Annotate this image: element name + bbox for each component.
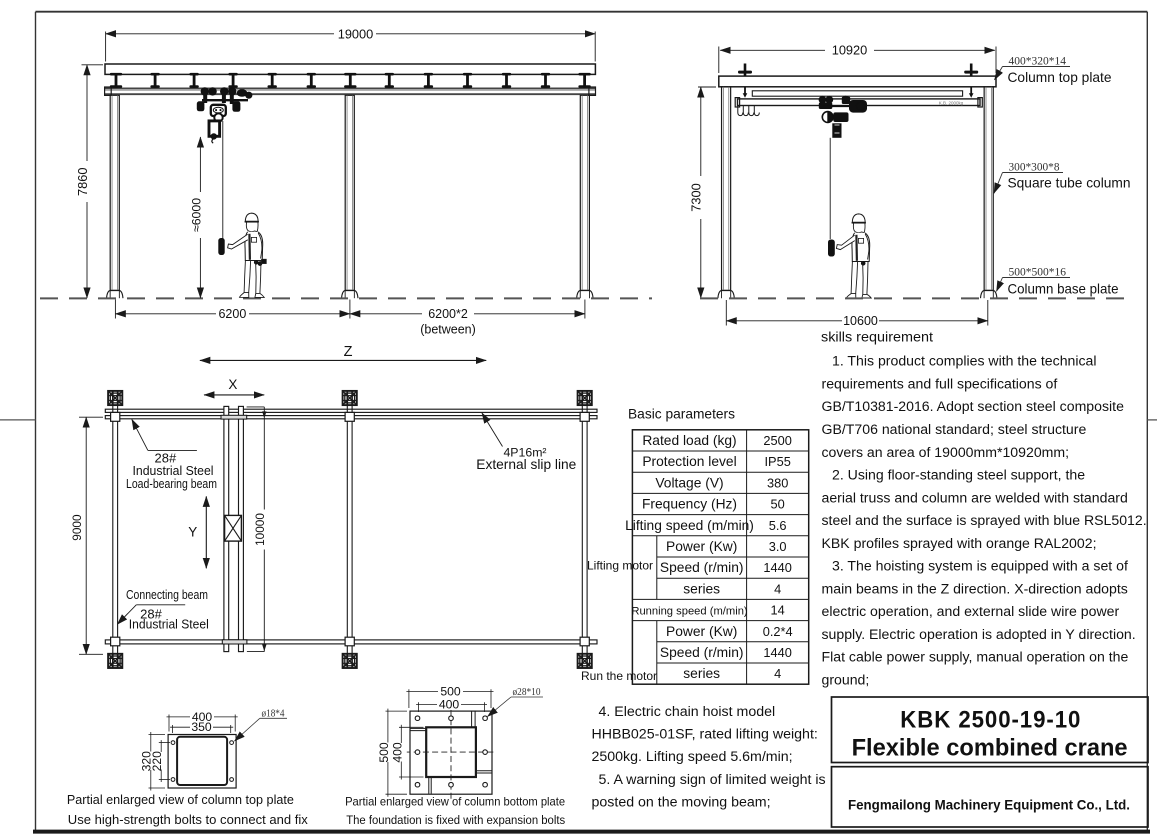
svg-text:Flat cable power supply, manua: Flat cable power supply, manual operatio… xyxy=(822,649,1129,665)
svg-text:ø18*4: ø18*4 xyxy=(262,709,286,720)
svg-text:KBK 2500-19-10: KBK 2500-19-10 xyxy=(900,706,1081,733)
svg-text:Running speed (m/min): Running speed (m/min) xyxy=(631,606,748,618)
svg-text:Speed (r/min): Speed (r/min) xyxy=(660,560,744,575)
svg-text:aerial truss and column are we: aerial truss and column are welded with … xyxy=(822,489,1128,505)
svg-text:Load-bearing beam: Load-bearing beam xyxy=(126,476,217,491)
svg-text:electric operation, and extern: electric operation, and external slide w… xyxy=(822,603,1120,619)
svg-text:400: 400 xyxy=(439,698,460,712)
svg-text:GB/T10381-2016. Adopt section: GB/T10381-2016. Adopt section steel comp… xyxy=(822,398,1125,414)
svg-text:Lifting speed (m/min): Lifting speed (m/min) xyxy=(625,518,754,533)
svg-text:14: 14 xyxy=(771,603,785,618)
svg-text:Flexible combined crane: Flexible combined crane xyxy=(852,735,1128,762)
svg-text:X: X xyxy=(228,377,237,392)
svg-text:Y: Y xyxy=(188,525,197,540)
svg-text:6200*2: 6200*2 xyxy=(428,307,468,321)
svg-text:≈6000: ≈6000 xyxy=(189,198,203,232)
svg-text:5. A warning sign of limited w: 5. A warning sign of limited weight is xyxy=(599,772,826,788)
svg-text:(between): (between) xyxy=(420,323,476,337)
svg-text:350: 350 xyxy=(191,720,212,734)
svg-text:HHBB025-01SF, rated lifting we: HHBB025-01SF, rated lifting weight: xyxy=(592,727,818,743)
svg-text:5.6: 5.6 xyxy=(769,518,787,533)
svg-text:supply. Electric operation is: supply. Electric operation is adopted in… xyxy=(822,626,1136,642)
svg-text:Speed (r/min): Speed (r/min) xyxy=(660,645,744,660)
svg-text:1. This product complies with: 1. This product complies with the techni… xyxy=(832,353,1097,369)
svg-text:9000: 9000 xyxy=(70,514,84,541)
svg-text:The foundation is fixed with e: The foundation is fixed with expansion b… xyxy=(346,813,565,827)
svg-text:series: series xyxy=(683,666,720,681)
svg-text:500: 500 xyxy=(440,685,461,699)
svg-text:10000: 10000 xyxy=(253,513,267,546)
svg-text:220: 220 xyxy=(150,751,164,772)
svg-text:4: 4 xyxy=(774,581,781,596)
svg-text:10600: 10600 xyxy=(843,314,878,328)
svg-text:ø28*10: ø28*10 xyxy=(513,687,541,698)
svg-text:10920: 10920 xyxy=(832,43,868,58)
svg-text:380: 380 xyxy=(767,475,788,490)
svg-text:main beams in the Z direction.: main beams in the Z direction. X-directi… xyxy=(822,580,1128,596)
svg-text:External slip line: External slip line xyxy=(476,457,576,472)
svg-text:Frequency (Hz): Frequency (Hz) xyxy=(642,497,737,512)
svg-text:0.2*4: 0.2*4 xyxy=(763,624,793,639)
svg-text:Fengmailong Machinery Equipmen: Fengmailong Machinery Equipment Co., Ltd… xyxy=(848,797,1130,812)
svg-text:Column top plate: Column top plate xyxy=(1008,70,1112,85)
svg-text:ground;: ground; xyxy=(822,671,870,687)
svg-text:1440: 1440 xyxy=(763,560,791,575)
svg-text:3.0: 3.0 xyxy=(769,539,787,554)
svg-text:Connecting beam: Connecting beam xyxy=(126,587,208,602)
svg-text:Basic parameters: Basic parameters xyxy=(628,406,735,421)
svg-text:posted on the moving beam;: posted on the moving beam; xyxy=(592,794,771,810)
svg-text:Z: Z xyxy=(344,344,353,360)
svg-text:19000: 19000 xyxy=(338,27,374,42)
svg-text:K.B. 2000kg: K.B. 2000kg xyxy=(939,100,964,105)
svg-text:Power (Kw): Power (Kw) xyxy=(666,624,737,639)
svg-text:covers an area of 19000mm*1092: covers an area of 19000mm*10920mm; xyxy=(822,444,1070,460)
svg-text:7860: 7860 xyxy=(75,167,90,195)
svg-text:6200: 6200 xyxy=(218,307,246,321)
svg-text:3. The hoisting system is equi: 3. The hoisting system is equipped with … xyxy=(832,558,1128,574)
svg-text:Column base plate: Column base plate xyxy=(1008,282,1119,297)
svg-text:KBK profiles sprayed with oran: KBK profiles sprayed with orange RAL2002… xyxy=(822,535,1097,551)
svg-text:4: 4 xyxy=(774,666,781,681)
svg-text:Square tube column: Square tube column xyxy=(1008,175,1131,190)
svg-text:50: 50 xyxy=(771,497,785,512)
svg-text:Use high-strength bolts to con: Use high-strength bolts to connect and f… xyxy=(68,812,308,827)
svg-text:Run the motor: Run the motor xyxy=(581,669,657,683)
svg-text:500*500*16: 500*500*16 xyxy=(1009,267,1067,279)
svg-text:Rated load (kg): Rated load (kg) xyxy=(642,433,736,448)
svg-text:2. Using floor-standing steel: 2. Using floor-standing steel support, t… xyxy=(832,467,1085,483)
svg-text:2500kg. Lifting speed 5.6m/min: 2500kg. Lifting speed 5.6m/min; xyxy=(592,749,793,765)
svg-text:7300: 7300 xyxy=(689,183,704,211)
svg-text:Protection level: Protection level xyxy=(642,454,736,469)
svg-text:400*320*14: 400*320*14 xyxy=(1009,56,1067,68)
svg-text:Voltage (V): Voltage (V) xyxy=(655,475,723,490)
svg-text:Partial enlarged view of colum: Partial enlarged view of column top plat… xyxy=(67,792,294,807)
svg-text:requirements and full specific: requirements and full specifications of xyxy=(822,375,1058,391)
svg-text:2500: 2500 xyxy=(763,433,791,448)
svg-text:skills requirement: skills requirement xyxy=(821,330,933,345)
svg-text:IP55: IP55 xyxy=(764,454,790,469)
svg-text:4. Electric chain hoist model: 4. Electric chain hoist model xyxy=(599,704,776,720)
svg-text:steel and the surface is spray: steel and the surface is sprayed with bl… xyxy=(822,512,1147,528)
svg-text:300*300*8: 300*300*8 xyxy=(1009,162,1060,174)
svg-text:400: 400 xyxy=(390,742,404,763)
svg-text:Partial enlarged view of colum: Partial enlarged view of column bottom p… xyxy=(345,795,565,809)
svg-text:1440: 1440 xyxy=(763,645,791,660)
svg-text:GB/T706 national standard; ste: GB/T706 national standard; steel structu… xyxy=(822,421,1087,437)
svg-text:500: 500 xyxy=(377,742,391,763)
svg-text:Industrial Steel: Industrial Steel xyxy=(129,617,209,632)
svg-text:Lifting motor: Lifting motor xyxy=(587,558,653,572)
svg-text:series: series xyxy=(683,581,720,596)
svg-text:Power (Kw): Power (Kw) xyxy=(666,539,737,554)
